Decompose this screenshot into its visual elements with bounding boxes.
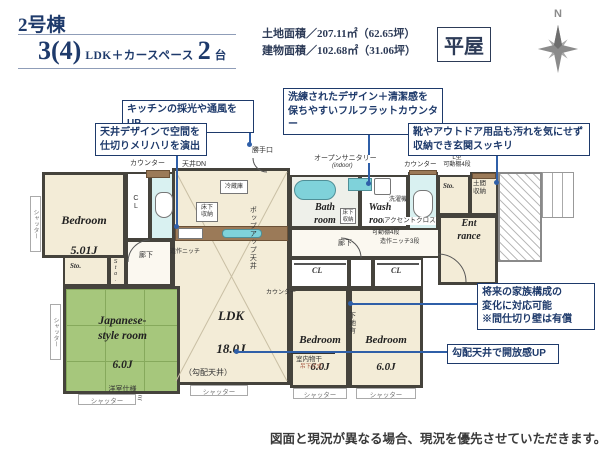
bedroom1-size: 5.01J: [71, 243, 98, 257]
label-bath: Bath room: [296, 202, 354, 227]
shutter-bedroom2: シャッター: [293, 388, 347, 399]
label-ldk: LDK 18.0J: [200, 292, 262, 357]
leader-dot-vaulted: [234, 349, 239, 354]
label-sto-1: Sto.: [70, 262, 81, 270]
leader-line-future: [352, 303, 477, 305]
ldk-name: LDK: [218, 308, 244, 323]
label-l-shelf: L型 可動棚4段: [440, 155, 474, 169]
shutter-ldk: シャッター: [190, 385, 248, 396]
label-cl-1: CL: [312, 266, 322, 276]
label-indoor-dry: 室内物干: [296, 356, 322, 364]
callout-genkan-storage: 靴やアウトドア用品も汚れを気にせず 収納でき玄関スッキリ: [408, 123, 590, 156]
callout-ceiling-design: 天井デザインで空間を 仕切りメリハリを演出: [95, 123, 207, 156]
label-shelf4: 可動棚4段: [372, 230, 399, 237]
leader-dot-kitchen: [247, 142, 252, 147]
label-niche3: 造作ニッチ3段: [380, 239, 419, 246]
label-cl-2: CL: [391, 266, 401, 276]
toilet-left: [155, 192, 173, 218]
washing-machine: [374, 178, 391, 195]
label-hall-main: 廊下: [338, 240, 352, 248]
shutter-bedroom3: シャッター: [356, 388, 416, 399]
floor-storage-kitchen: 床下 収納: [196, 202, 218, 222]
bedroom3-size: 6.0J: [376, 361, 395, 373]
shutter-japanese: シャッター: [78, 394, 136, 405]
shutter-japanese-side: シャッター: [50, 304, 61, 360]
closet-rod-2: [377, 263, 419, 265]
counter-top-left: [146, 170, 170, 178]
callout-future-family: 将来の家族構成の 変化に対応可能 ※間仕切り壁は有償: [477, 283, 595, 330]
leader-line-vaulted: [238, 351, 447, 353]
floorplan-flyer: 2号棟 3(4) LDK＋カースペース 2 台 土地面積／207.11㎡（62.…: [0, 0, 600, 450]
bathtub: [294, 180, 336, 200]
label-vaulted-note: （勾配天井）: [184, 368, 232, 378]
bedroom3-name: Bedroom: [365, 334, 407, 346]
label-niche: 造作ニッチ: [170, 249, 200, 256]
fridge-space: 冷蔵庫: [220, 180, 248, 194]
leader-line-genkan: [496, 155, 498, 182]
toilet-right: [413, 190, 433, 218]
japanese-name: Japanese- style room: [75, 314, 170, 343]
leader-dot-ceiling: [174, 224, 179, 229]
japanese-size: 6.0J: [75, 358, 170, 372]
label-doma: 土間 収納: [473, 180, 486, 196]
label-counter-top: カウンター: [130, 160, 165, 168]
label-cl-left: CL: [131, 195, 139, 219]
callout-vaulted-ceiling: 勾配天井で開放感UP: [447, 344, 559, 364]
label-bedroom1: Bedroom 5.01J: [48, 198, 120, 258]
label-sto-2: Sto.: [112, 259, 119, 285]
label-accent-cloth: アクセントクロス: [384, 217, 436, 225]
closet-rod-1: [294, 263, 346, 265]
label-popup-ceiling: ポップアップ天井: [248, 206, 256, 298]
label-sto-right: Sto.: [443, 182, 454, 190]
label-ceiling-dn: 天井DN: [182, 161, 206, 169]
shutter-bedroom1: シャッター: [30, 196, 41, 252]
leader-dot-counter: [366, 181, 371, 186]
label-base-wall: 下地有: [347, 312, 355, 346]
bedroom2-name: Bedroom: [299, 334, 341, 346]
leader-dot-genkan: [494, 180, 499, 185]
label-open-sanitary-sub: (indoor): [332, 163, 353, 170]
label-counter-toilet: カウンター: [404, 161, 437, 169]
label-indoor-dry-sub: 吊下げ式: [300, 364, 322, 371]
doma-shelf: [472, 173, 496, 179]
label-hall-left: 廊下: [139, 252, 153, 260]
label-entrance: Ent rance: [448, 218, 490, 243]
leader-dot-future: [348, 301, 353, 306]
kitchen-stove: [178, 228, 203, 239]
label-counter-bedroom: カウンター: [266, 290, 296, 297]
counter-toilet-right: [409, 170, 437, 175]
label-bedroom3: Bedroom 6.0J: [352, 320, 420, 375]
leader-line-ceiling: [176, 152, 178, 226]
ldk-size: 18.0J: [216, 341, 245, 356]
label-washer: 洗濯機: [389, 197, 407, 204]
label-kitchen-door: 勝手口: [252, 147, 273, 155]
bedroom1-name: Bedroom: [61, 213, 106, 227]
